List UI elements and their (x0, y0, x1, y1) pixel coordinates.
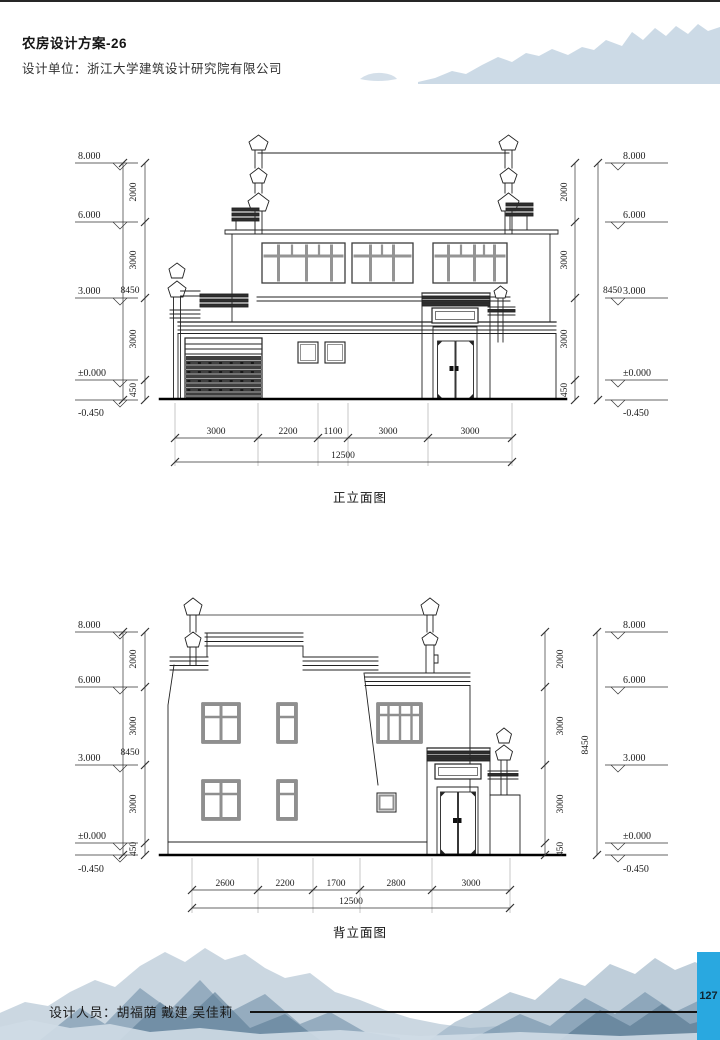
level-marker: 6.000 (605, 210, 668, 229)
finial-icon (168, 281, 186, 297)
footer-rule (250, 1011, 697, 1013)
width-seg-label: 2200 (279, 427, 298, 437)
door-handle-icon (450, 366, 454, 371)
door-handle-icon (453, 818, 457, 823)
level-marker: 8.000 (75, 620, 138, 639)
height-seg-label: 2000 (560, 182, 570, 201)
overall-height-label: 8450 (121, 286, 140, 296)
level-label: 6.000 (623, 210, 646, 221)
width-seg-label: 3000 (461, 427, 480, 437)
small-window (377, 793, 396, 812)
height-seg-label: 450 (129, 842, 139, 857)
width-seg-label: 3000 (462, 879, 481, 889)
double-door (438, 341, 474, 399)
level-label: -0.450 (78, 864, 104, 875)
height-seg-label: 3000 (556, 716, 566, 735)
finial-post-right (498, 135, 519, 234)
rear-gate (427, 748, 490, 855)
back-elevation-drawing: 8.000 6.000 3.000 ±0.000 -0.450 8450 200… (60, 585, 680, 945)
overall-height-label: 8450 (603, 286, 622, 296)
level-marker: 8.000 (75, 151, 138, 170)
height-seg-label: 2000 (556, 649, 566, 668)
height-seg-label: 3000 (129, 329, 139, 348)
entrance-gate (422, 293, 490, 399)
front-window-band (262, 243, 507, 283)
finial-icon (421, 598, 439, 615)
window-group (262, 243, 345, 283)
mountain-blob-icon (360, 73, 397, 81)
level-label: 6.000 (78, 675, 101, 686)
drawing-caption: 正立面图 (0, 487, 720, 506)
window-group (377, 703, 422, 743)
level-label: -0.450 (623, 864, 649, 875)
height-seg-label: 3000 (560, 329, 570, 348)
width-seg-label: 3000 (379, 427, 398, 437)
door-handle-icon (458, 818, 462, 823)
finial-icon (497, 728, 512, 743)
width-seg-label: 1100 (324, 427, 343, 437)
chimney-left (232, 208, 259, 230)
window-group (433, 243, 507, 283)
small-window (298, 342, 318, 363)
finial-icon (499, 135, 518, 150)
level-marker: 3.000 (605, 753, 668, 772)
double-door (441, 792, 476, 854)
overall-width-label: 12500 (339, 897, 363, 907)
level-label: 8.000 (623, 151, 646, 162)
level-marker: -0.450 (605, 400, 668, 419)
level-marker: 8.000 (605, 151, 668, 170)
height-seg-label: 3000 (129, 250, 139, 269)
height-seg-label: 3000 (556, 794, 566, 813)
overall-height-label: 8450 (121, 748, 140, 758)
finial-icon (422, 632, 438, 645)
level-label: ±0.000 (78, 831, 106, 842)
finial-icon (249, 135, 268, 150)
finial-post-left (184, 598, 202, 665)
height-seg-label: 450 (560, 383, 570, 398)
level-label: 3.000 (623, 286, 646, 297)
level-label: ±0.000 (623, 368, 651, 379)
design-unit-label: 设计单位：浙江大学建筑设计研究院有限公司 (22, 58, 282, 77)
level-label: ±0.000 (623, 831, 651, 842)
designers-label: 设计人员：胡福荫 戴建 吴佳莉 (49, 1002, 233, 1021)
window-group (202, 780, 240, 820)
mountain-watermark-top (340, 18, 720, 90)
height-seg-label: 3000 (560, 250, 570, 269)
window-group (277, 703, 297, 743)
finial-icon (494, 286, 507, 298)
level-label: -0.450 (78, 408, 104, 419)
finial-icon (185, 632, 201, 647)
upper-cornice (225, 230, 558, 234)
level-label: 3.000 (623, 753, 646, 764)
level-label: 6.000 (623, 675, 646, 686)
document-page: { "header": { "title": "农房设计方案-26", "des… (0, 0, 720, 1040)
window-group (352, 243, 413, 283)
finial-icon (500, 168, 517, 183)
level-label: 3.000 (78, 286, 101, 297)
height-seg-label: 450 (129, 383, 139, 398)
level-marker: 6.000 (75, 210, 138, 229)
level-marker: 8.000 (605, 620, 668, 639)
front-elevation-drawing: 8.000 6.000 3.000 ±0.000 -0.450 8450 200… (60, 115, 680, 505)
top-rule (0, 0, 720, 2)
garage-door (185, 338, 262, 399)
finial-icon (184, 598, 202, 615)
page-title: 农房设计方案-26 (22, 32, 127, 52)
width-seg-label: 2200 (276, 879, 295, 889)
level-label: 8.000 (623, 620, 646, 631)
drawing-caption: 背立面图 (0, 922, 720, 941)
finial-icon (169, 263, 185, 278)
level-label: -0.450 (623, 408, 649, 419)
chimney (421, 598, 439, 673)
window-group (277, 780, 297, 820)
level-label: 8.000 (78, 151, 101, 162)
level-marker: 6.000 (605, 675, 668, 694)
gate-post-right (488, 728, 520, 855)
overall-width-label: 12500 (331, 451, 355, 461)
door-handle-icon (455, 366, 459, 371)
level-label: 3.000 (78, 753, 101, 764)
level-marker: ±0.000 (605, 831, 668, 850)
small-window (325, 342, 345, 363)
width-seg-label: 2600 (216, 879, 235, 889)
level-label: 6.000 (78, 210, 101, 221)
height-seg-label: 2000 (129, 649, 139, 668)
mountain-painting-footer (0, 940, 720, 1040)
page-number-badge: 127 (697, 952, 720, 1040)
width-seg-label: 2800 (387, 879, 406, 889)
overall-height-label: 8450 (581, 735, 591, 754)
back-elevation-dimensions: 8.000 6.000 3.000 ±0.000 -0.450 8450 200… (75, 620, 668, 913)
level-label: 8.000 (78, 620, 101, 631)
level-marker: -0.450 (75, 855, 138, 875)
level-marker: -0.450 (605, 855, 668, 875)
height-seg-label: 450 (556, 842, 566, 857)
width-seg-label: 3000 (207, 427, 226, 437)
garage-parapet (170, 294, 248, 318)
mountain-ridge-icon (418, 24, 720, 84)
width-seg-label: 1700 (327, 879, 346, 889)
level-marker: 6.000 (75, 675, 138, 694)
height-seg-label: 2000 (129, 182, 139, 201)
window-group (202, 703, 240, 743)
finial-icon (250, 168, 267, 183)
level-label: ±0.000 (78, 368, 106, 379)
level-marker: ±0.000 (605, 368, 668, 387)
height-seg-label: 3000 (129, 794, 139, 813)
height-seg-label: 3000 (129, 716, 139, 735)
front-elevation-dimensions: 8.000 6.000 3.000 ±0.000 -0.450 8450 200… (75, 151, 668, 466)
finial-icon (496, 745, 513, 760)
level-marker: -0.450 (75, 400, 138, 419)
